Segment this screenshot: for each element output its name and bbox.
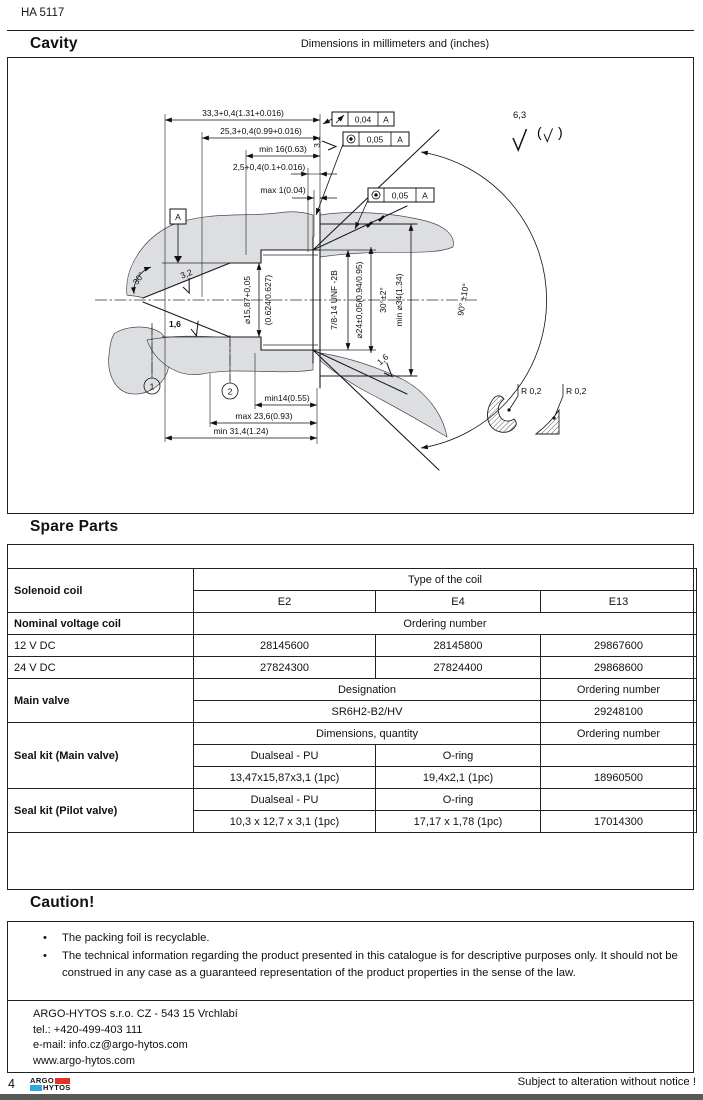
svg-text:A: A	[383, 115, 389, 125]
dim-cone-90: 90° ±10°	[455, 282, 471, 316]
page-number: 4	[8, 1077, 15, 1091]
dim-bore-15-87: ⌀15,87+0,05	[242, 276, 252, 324]
section-spare-parts-header: Spare Parts	[7, 513, 694, 545]
datasheet-page: HA 5117 Cavity Dimensions in millimeters…	[0, 0, 703, 1100]
list-item: • The technical information regarding th…	[28, 948, 678, 981]
table-row: Main valve Designation Ordering number	[8, 679, 697, 701]
bullet-icon: •	[28, 930, 62, 946]
table-row: 12 V DC 28145600 28145800 29867600	[8, 635, 697, 657]
svg-text:0,05: 0,05	[367, 135, 384, 145]
list-item: • The packing foil is recyclable.	[28, 930, 678, 946]
caution-title: Caution!	[7, 890, 694, 912]
dim-bore-34: min ⌀34(1.34)	[394, 273, 404, 326]
dim-min-31-4: min 31,4(1.24)	[214, 426, 269, 436]
section-caution-header: Caution!	[7, 889, 694, 922]
logo-cyan-block	[30, 1085, 42, 1091]
dim-chamfer-30: 30°±2°	[378, 287, 388, 313]
dim-33-3: 33,3+0,4(1.31+0.016)	[202, 108, 284, 118]
svg-text:A: A	[175, 212, 181, 222]
contact-web: www.argo-hytos.com	[33, 1054, 694, 1070]
dim-thread: 7/8-14 UNF -2B	[329, 270, 339, 330]
dim-2-5: 2,5+0,4(0.1+0.016)	[233, 162, 305, 172]
document-code: HA 5117	[21, 7, 64, 19]
svg-text:A: A	[422, 191, 428, 201]
table-row: Seal kit (Pilot valve) Dualseal - PU O-r…	[8, 789, 697, 811]
caution-bullets: • The packing foil is recyclable. • The …	[28, 930, 678, 983]
radius-label-2: R 0,2	[566, 386, 587, 396]
contact-email: e-mail: info.cz@argo-hytos.com	[33, 1038, 694, 1054]
balloon-2: 2	[228, 387, 233, 397]
table-row: Solenoid coil Type of the coil	[8, 569, 697, 591]
radius-detail-shape-1	[487, 396, 516, 432]
dim-25-3: 25,3+0,4(0.99+0.016)	[220, 126, 302, 136]
argo-hytos-logo: ARGO HYTOS	[30, 1077, 71, 1091]
dim-max-23-6: max 23,6(0.93)	[235, 411, 292, 421]
svg-text:0,04: 0,04	[355, 115, 372, 125]
svg-text:(: (	[537, 124, 542, 140]
spare-parts-table: Solenoid coil Type of the coil E2 E4 E13…	[7, 568, 697, 833]
gdt-frame-runout: 0,04 A	[323, 112, 394, 126]
radius-details: R 0,2 R 0,2	[487, 384, 586, 434]
finish-3-2-vertical: 3,2	[312, 136, 322, 148]
svg-text:6,3: 6,3	[513, 110, 526, 121]
dimensions-note: Dimensions in millimeters and (inches)	[240, 38, 550, 50]
bullet-icon: •	[28, 948, 62, 981]
contact-block: ARGO-HYTOS s.r.o. CZ - 543 15 Vrchlabí t…	[7, 1000, 694, 1073]
dim-bore-15-87-in: (0.624/0.627)	[263, 275, 273, 326]
svg-text:0,05: 0,05	[392, 191, 409, 201]
table-row: 24 V DC 27824300 27824400 29868600	[8, 657, 697, 679]
radius-label-1: R 0,2	[521, 386, 542, 396]
dim-max1: max 1(0.04)	[260, 185, 306, 195]
dim-min16: min 16(0.63)	[259, 144, 307, 154]
alteration-notice: Subject to alteration without notice !	[518, 1076, 696, 1088]
contact-address: ARGO-HYTOS s.r.o. CZ - 543 15 Vrchlabí	[33, 1007, 694, 1023]
contact-phone: tel.: +420-499-403 111	[33, 1023, 694, 1039]
dim-min14: min14(0.55)	[264, 393, 310, 403]
table-row: Seal kit (Main valve) Dimensions, quanti…	[8, 723, 697, 745]
bottom-dimensions: min14(0.55) max 23,6(0.93) min 31,4(1.24…	[165, 393, 317, 438]
finish-1-6-cone: 1,6	[375, 352, 391, 368]
dim-bore-24: ⌀24±0,05(0.94/0.95)	[354, 261, 364, 338]
spare-parts-title: Spare Parts	[7, 514, 694, 536]
page-edge-strip	[0, 1094, 703, 1100]
top-dimensions: 33,3+0,4(1.31+0.016) 25,3+0,4(0.99+0.016…	[165, 108, 337, 198]
svg-text:A: A	[397, 135, 403, 145]
balloon-1: 1	[150, 382, 155, 392]
table-row: Nominal voltage coil Ordering number	[8, 613, 697, 635]
general-finish-mark: 6,3 ( )	[513, 110, 563, 150]
finish-1-6-left: 1,6	[169, 319, 181, 329]
svg-text:): )	[558, 124, 563, 140]
cavity-technical-drawing: 33,3+0,4(1.31+0.016) 25,3+0,4(0.99+0.016…	[7, 57, 694, 513]
